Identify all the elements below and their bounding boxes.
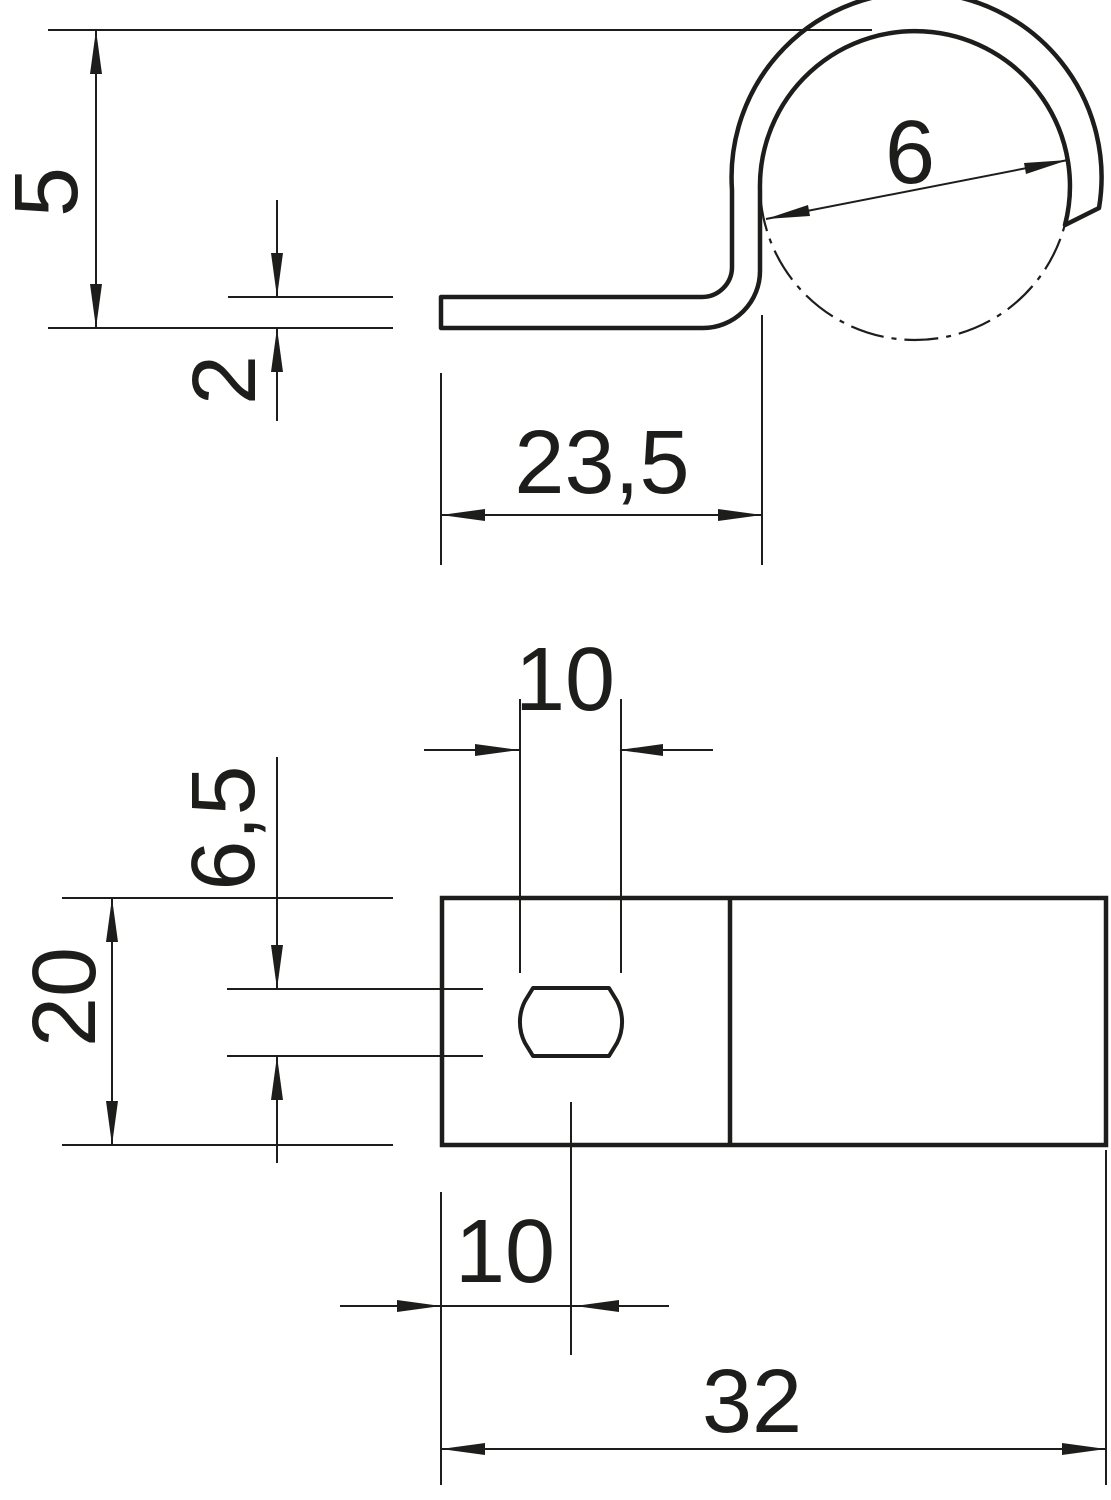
dim-label-loop-diameter: 6: [885, 103, 935, 203]
arrowhead: [271, 945, 283, 989]
arrowhead: [475, 744, 519, 756]
arrowhead: [575, 1300, 619, 1312]
dim-label-slot-offset: 10: [455, 1202, 555, 1302]
arrowhead: [441, 509, 485, 521]
arrowhead: [1062, 1443, 1106, 1455]
arrowhead: [271, 1056, 283, 1100]
dim-label-plate-width: 20: [15, 947, 115, 1047]
dim-label-plate-length: 32: [702, 1352, 802, 1452]
side-view: 5 2 23,5 6: [0, 0, 1102, 565]
dim-label-slot-width: 6,5: [174, 765, 274, 890]
arrowhead: [271, 253, 283, 297]
arrowhead: [90, 284, 102, 328]
arrowhead: [397, 1300, 441, 1312]
arrowhead: [106, 898, 118, 942]
dim-label-slot-length: 10: [515, 630, 615, 730]
arrowhead: [90, 30, 102, 74]
arrowhead: [441, 1443, 485, 1455]
arrowhead: [106, 1101, 118, 1145]
arrowhead: [718, 509, 762, 521]
technical-drawing-page: 5 2 23,5 6: [0, 0, 1111, 1500]
slot-hole-outline: [520, 988, 622, 1056]
arrowhead: [1024, 160, 1068, 174]
arrowhead: [766, 205, 810, 219]
dim-label-height: 5: [0, 167, 97, 217]
plan-view: 10 6,5 20 10 32: [15, 630, 1106, 1485]
technical-drawing: 5 2 23,5 6: [0, 0, 1111, 1500]
clip-profile-outline: [441, 0, 1102, 328]
dim-label-base-length: 23,5: [514, 413, 689, 513]
arrowhead: [619, 744, 663, 756]
dim-label-thickness: 2: [175, 355, 275, 405]
